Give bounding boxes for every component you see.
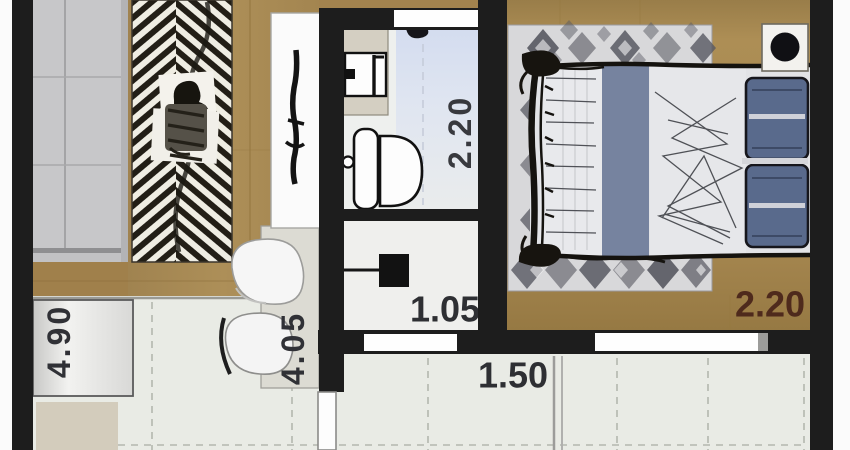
svg-text:4.05: 4.05 <box>275 311 311 385</box>
svg-text:2.20: 2.20 <box>735 284 805 325</box>
svg-text:1.50: 1.50 <box>478 355 548 396</box>
svg-text:1.05: 1.05 <box>410 289 480 330</box>
svg-text:4.90: 4.90 <box>41 304 77 378</box>
svg-text:2.20: 2.20 <box>442 95 478 169</box>
